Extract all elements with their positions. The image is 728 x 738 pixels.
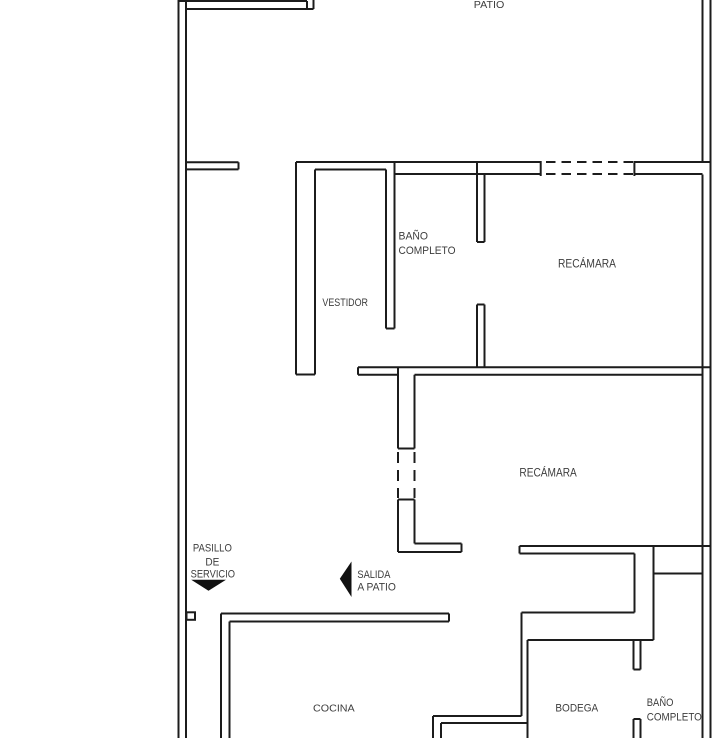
svg-text:BODEGA: BODEGA — [555, 703, 598, 715]
svg-text:RECÁMARA: RECÁMARA — [519, 465, 576, 480]
svg-text:RECÁMARA: RECÁMARA — [558, 256, 616, 271]
svg-text:SERVICIO: SERVICIO — [191, 569, 236, 581]
svg-text:SALIDA: SALIDA — [357, 569, 391, 581]
svg-text:DE: DE — [205, 557, 219, 569]
svg-text:COCINA: COCINA — [313, 703, 355, 715]
svg-text:A PATIO: A PATIO — [357, 582, 396, 594]
svg-text:PASILLO: PASILLO — [193, 543, 232, 555]
svg-text:BAÑO: BAÑO — [399, 230, 429, 243]
svg-text:COMPLETO: COMPLETO — [399, 245, 456, 257]
svg-text:BAÑO: BAÑO — [647, 696, 674, 709]
svg-text:COMPLETO: COMPLETO — [647, 712, 702, 724]
svg-text:VESTIDOR: VESTIDOR — [322, 297, 368, 309]
svg-text:PATIO: PATIO — [474, 0, 505, 11]
